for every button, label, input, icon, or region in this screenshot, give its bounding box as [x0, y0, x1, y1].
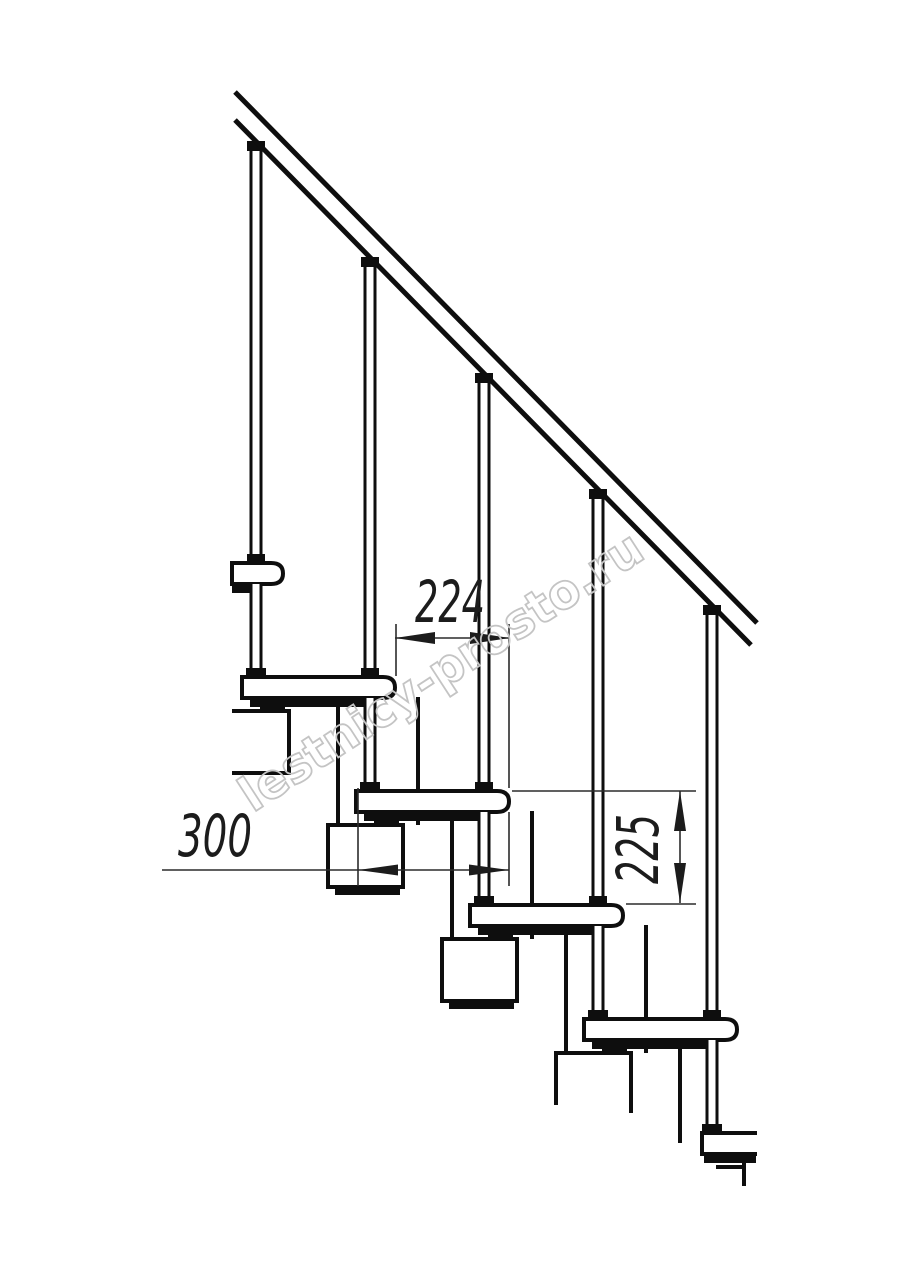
tread-5-partial [702, 1133, 757, 1154]
baluster-foot [246, 668, 266, 677]
baluster-foot [360, 782, 380, 791]
baluster-1 [246, 141, 266, 677]
tread-3 [470, 905, 623, 926]
module-step-5-cut [704, 1154, 756, 1186]
baluster-collar [361, 668, 379, 677]
module-tab [488, 931, 513, 941]
baluster-collar [247, 554, 265, 563]
handrail-bottom-line [235, 120, 751, 645]
baluster-foot [588, 1010, 608, 1019]
dimension-tread-depth-value: 300 [178, 802, 252, 870]
handrail [235, 92, 757, 645]
module-box-partial [556, 1053, 631, 1113]
module-box-base [335, 887, 400, 895]
tread-2 [356, 791, 509, 812]
dimension-rise-value: 225 [604, 814, 672, 884]
module-box-base [449, 1001, 514, 1009]
baluster-collar [475, 782, 493, 791]
module-box [442, 939, 517, 1001]
watermark-text: lestnicy-prosto.ru [229, 520, 654, 823]
baluster-foot [702, 1124, 722, 1133]
module-tab [374, 817, 399, 827]
baluster-collar [703, 1010, 721, 1019]
drawing-svg: 224 300 225 lestnicy-prosto.ru [0, 0, 914, 1280]
baluster-collar [589, 896, 607, 905]
tread-landing-partial [232, 563, 283, 584]
baluster-foot [474, 896, 494, 905]
handrail-top-line [235, 92, 757, 623]
arrowhead-up-icon [674, 791, 686, 831]
baluster-5 [702, 605, 722, 1133]
module-box [328, 825, 403, 887]
module-tab [260, 703, 285, 713]
tread-4 [584, 1019, 737, 1040]
module-tab [602, 1045, 627, 1055]
arrowhead-down-icon [674, 863, 686, 903]
staircase-technical-drawing: 224 300 225 lestnicy-prosto.ru [0, 0, 914, 1280]
